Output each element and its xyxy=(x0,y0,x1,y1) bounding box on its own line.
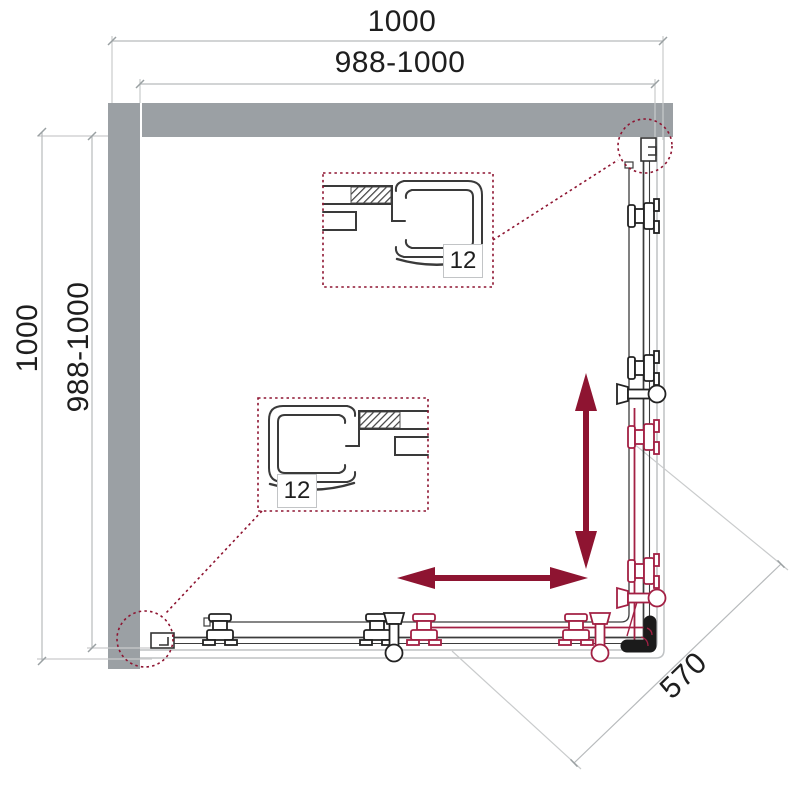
roller-carriage-door xyxy=(628,554,659,588)
slide-arrow-vertical xyxy=(575,373,597,569)
dimension-label-left-inner: 988-1000 xyxy=(62,282,96,413)
wall-bracket-top-right xyxy=(641,138,656,161)
detail-leader-top xyxy=(493,160,618,240)
glass-thickness-label-bottom: 12 xyxy=(277,474,317,508)
roller-carriage xyxy=(203,614,237,645)
roller-carriage-door xyxy=(628,420,659,454)
dimension-label-top-inner: 988-1000 xyxy=(335,46,466,80)
detail-leader-bottom xyxy=(166,511,262,613)
technical-drawing-canvas: 1000 988-1000 1000 988-1000 570 12 12 xyxy=(0,0,800,786)
fixed-glass-panels xyxy=(208,167,629,622)
slide-arrow-horizontal xyxy=(397,567,588,589)
glass-thickness-value: 12 xyxy=(284,477,311,505)
roller-carriage xyxy=(628,199,659,233)
dimension-lines xyxy=(42,41,781,763)
roller-carriage-door xyxy=(407,614,441,645)
roller-carriage xyxy=(628,351,659,385)
dimension-label-left-outer: 1000 xyxy=(11,304,45,373)
roller-carriage-door xyxy=(559,614,593,645)
sliding-door-panels xyxy=(424,408,650,644)
wall-top xyxy=(108,103,673,137)
glass-thickness-value: 12 xyxy=(450,247,477,275)
dimension-label-top-outer: 1000 xyxy=(368,5,437,39)
door-knob-red xyxy=(617,588,666,608)
wall-left xyxy=(108,103,140,669)
frame-tracks xyxy=(153,140,650,644)
door-knob xyxy=(617,384,666,404)
glass-thickness-label-top: 12 xyxy=(443,244,483,278)
door-slide-arrows xyxy=(397,373,597,589)
roller-hardware xyxy=(203,199,666,662)
